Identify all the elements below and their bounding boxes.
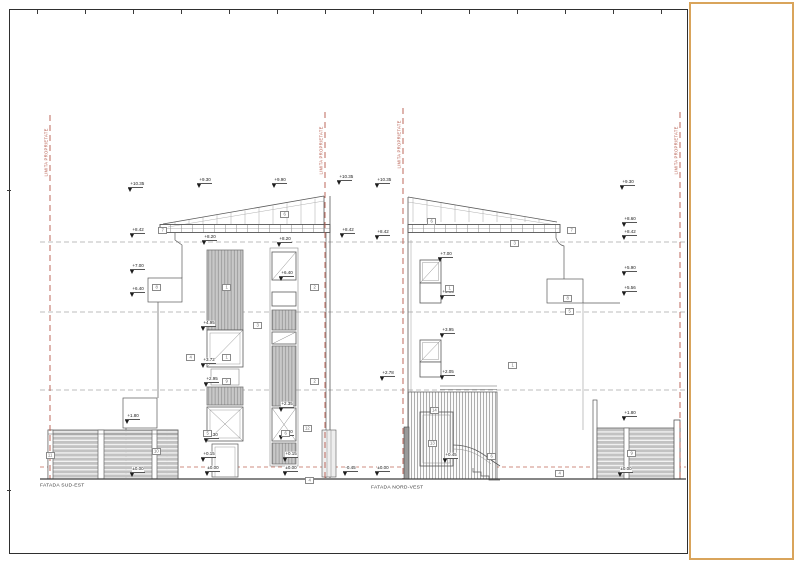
blank-fold-panel [689, 2, 794, 560]
ruler-tick [277, 10, 278, 14]
ruler-tick [325, 10, 326, 14]
ruler-tick [469, 10, 470, 14]
ruler-tick [85, 10, 86, 14]
ruler-tick [181, 10, 182, 14]
drawing-sheet: +10.35+9.30+9.90+10.35+8.42+8.42+8.20+8.… [0, 0, 796, 563]
facade-left-caption: FATADA SUD-EST [40, 483, 85, 488]
sheet-ruler-layer [0, 0, 796, 563]
ruler-tick [7, 490, 11, 491]
ruler-tick [7, 190, 11, 191]
ruler-tick [133, 10, 134, 14]
facade-right-caption: FATADA NORD-VEST [371, 485, 423, 490]
ruler-tick [229, 10, 230, 14]
ruler-tick [613, 10, 614, 14]
ruler-tick [565, 10, 566, 14]
ruler-tick [37, 10, 38, 14]
ruler-tick [373, 10, 374, 14]
ruler-tick [661, 10, 662, 14]
ruler-tick [421, 10, 422, 14]
ruler-tick [517, 10, 518, 14]
